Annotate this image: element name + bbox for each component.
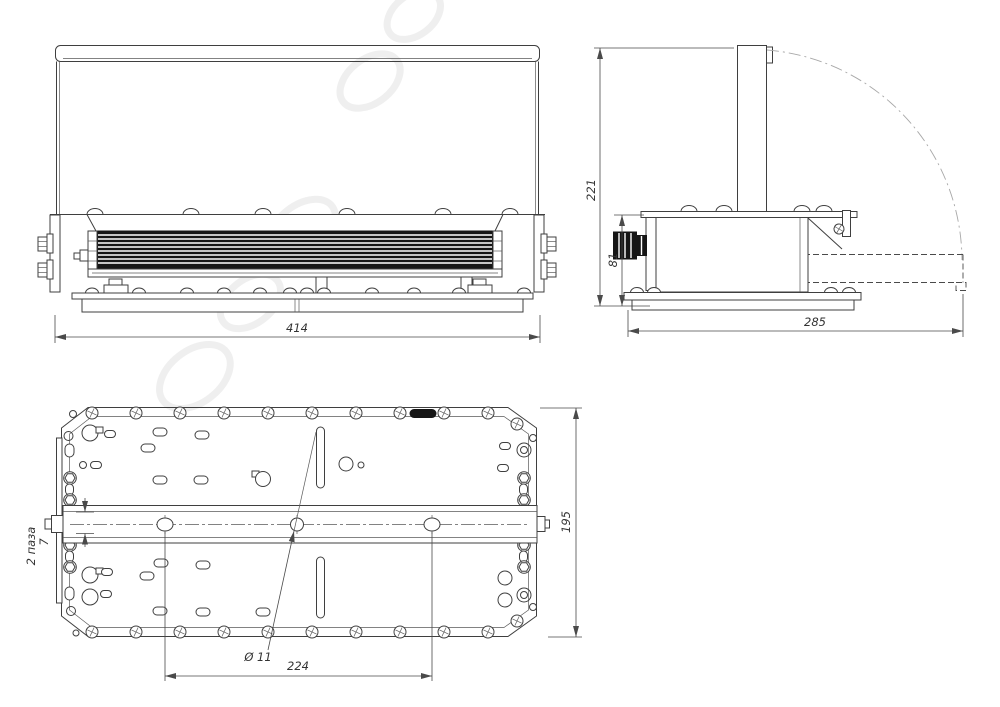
led-module-top xyxy=(87,215,503,232)
dome-bump xyxy=(133,288,146,293)
foot-bump xyxy=(843,288,856,293)
mounting-bar xyxy=(45,506,550,544)
dim-side-body-height-label: 81 xyxy=(606,253,620,268)
dome-bump xyxy=(86,288,99,293)
edge-slot xyxy=(65,444,74,457)
screw-icon xyxy=(510,417,523,430)
plan-view: 195 224 Ø 11 7 2 паза xyxy=(24,406,582,681)
dome-bump xyxy=(408,288,421,293)
dim-slot-width-label: 7 xyxy=(37,538,51,546)
left-mount-plate xyxy=(38,215,60,292)
mounting-slot xyxy=(424,518,440,531)
edge-slot xyxy=(65,587,74,600)
slot-hole xyxy=(500,443,511,450)
dome-bump xyxy=(339,209,355,215)
long-slot xyxy=(317,427,325,488)
rivet xyxy=(517,443,531,457)
dome-bump xyxy=(366,288,379,293)
dome-bump xyxy=(301,288,314,293)
bracket-lip xyxy=(767,47,773,63)
rear-tab xyxy=(843,211,851,237)
screw-icon xyxy=(129,406,142,419)
dome-bump xyxy=(518,288,531,293)
watermark xyxy=(59,0,546,422)
rivet xyxy=(521,447,528,454)
dome-bump xyxy=(794,206,810,212)
dimension-hole-spacing: 224 xyxy=(165,532,432,681)
dim-side-depth-label: 285 xyxy=(804,315,826,329)
dim-front-width-label: 414 xyxy=(286,321,308,335)
dome-bump xyxy=(183,209,199,215)
foot-bump xyxy=(825,288,838,293)
dome-bump xyxy=(181,288,194,293)
long-slot xyxy=(317,557,325,618)
housing-body xyxy=(656,218,808,293)
dome-bump xyxy=(816,206,832,212)
slot-hole xyxy=(498,465,509,472)
dome-bump xyxy=(255,209,271,215)
mounting-hole xyxy=(291,518,304,531)
dimension-front-width: 414 xyxy=(55,315,540,343)
screw-icon xyxy=(481,406,494,419)
screw-icon xyxy=(349,406,362,419)
dim-hole-spacing-label: 224 xyxy=(287,659,309,673)
hex-bolt-icon xyxy=(64,472,77,485)
body-flange xyxy=(641,212,857,218)
dome-bump xyxy=(254,288,267,293)
screw-icon xyxy=(261,406,274,419)
mounting-slot xyxy=(157,518,173,531)
heatsink-nub xyxy=(74,253,80,259)
rivet xyxy=(517,588,531,602)
terminal-box xyxy=(104,279,128,293)
reflector-top-edge xyxy=(56,46,540,62)
lower-hole-pattern xyxy=(82,557,325,618)
hex-bolt-icon xyxy=(64,561,77,574)
screw-icon xyxy=(510,614,523,627)
vent-plug xyxy=(410,410,436,418)
dome-bump xyxy=(435,209,451,215)
upper-hole-pattern xyxy=(80,425,365,488)
dome-bump xyxy=(284,288,297,293)
dim-side-total-height-label: 221 xyxy=(584,179,598,201)
hex-bolt-icon xyxy=(518,561,531,574)
technical-drawing-sheet: 414 xyxy=(0,0,1000,707)
dome-bump xyxy=(87,209,103,215)
rivet xyxy=(521,592,528,599)
dim-hole-diameter-label: Ø 11 xyxy=(243,650,271,664)
screw-icon xyxy=(305,406,318,419)
screw-icon xyxy=(437,406,450,419)
corner-hole xyxy=(64,432,73,441)
dome-bump xyxy=(716,206,732,212)
base-plate xyxy=(632,300,854,310)
dim-plan-depth-label: 195 xyxy=(559,511,573,533)
hex-bolt-icon xyxy=(64,494,77,507)
screw-icon xyxy=(393,406,406,419)
corner-hole xyxy=(530,435,537,442)
front-view: 414 xyxy=(38,46,556,344)
heatsink xyxy=(74,231,502,269)
corner-hole xyxy=(530,604,537,611)
corner-hole xyxy=(73,630,79,636)
hole xyxy=(498,593,512,607)
right-mount-plate xyxy=(534,215,556,292)
hex-bolt-icon xyxy=(518,472,531,485)
foot-bump xyxy=(631,288,644,293)
base-plate xyxy=(72,293,533,299)
corner-hole xyxy=(70,411,77,418)
dome-bump xyxy=(502,209,518,215)
hole xyxy=(498,571,512,585)
side-view: 221 81 285 xyxy=(584,46,966,338)
heatsink-nub xyxy=(80,250,88,261)
dome-bump xyxy=(681,206,697,212)
hex-bolt-icon xyxy=(518,494,531,507)
base-plate xyxy=(82,299,523,312)
callout-hole-diameter: Ø 11 xyxy=(243,432,316,664)
dim-slot-note-label: 2 паза xyxy=(24,527,38,566)
luminaire-drawing: 414 xyxy=(0,0,1000,707)
base-plate xyxy=(624,293,861,301)
screw-icon xyxy=(217,406,230,419)
